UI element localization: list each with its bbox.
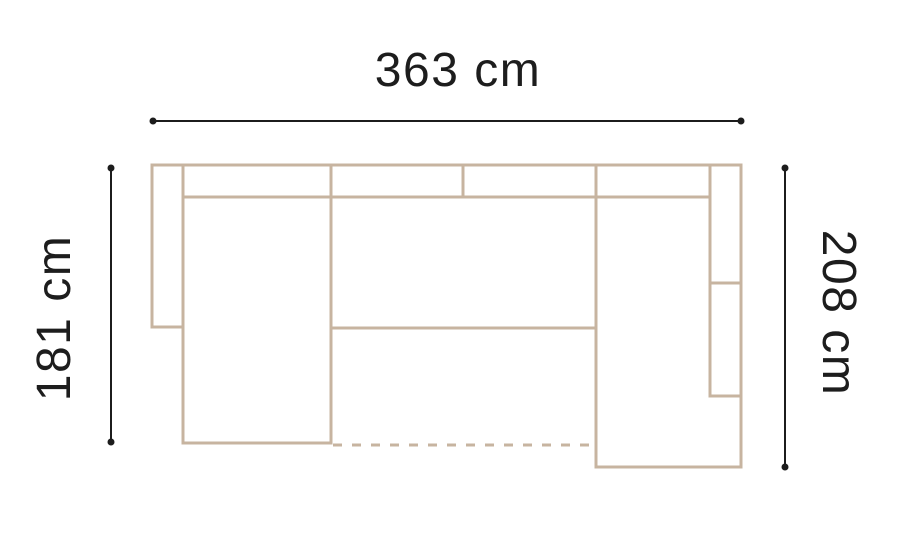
- right-depth-dimension-line-start-dot: [782, 165, 789, 172]
- width-dimension-line-start-dot: [150, 118, 157, 125]
- right-depth-dimension-line-end-dot: [782, 464, 789, 471]
- width-dimension-label: 363 cm: [375, 47, 541, 95]
- left-depth-dimension-line-start-dot: [108, 165, 115, 172]
- width-dimension-line-end-dot: [738, 118, 745, 125]
- left-depth-dimension-label: 181 cm: [31, 235, 79, 401]
- right-depth-dimension-label: 208 cm: [814, 230, 862, 396]
- sofa-dimension-diagram: 363 cm 181 cm 208 cm: [0, 0, 908, 536]
- left-depth-dimension-line-end-dot: [108, 439, 115, 446]
